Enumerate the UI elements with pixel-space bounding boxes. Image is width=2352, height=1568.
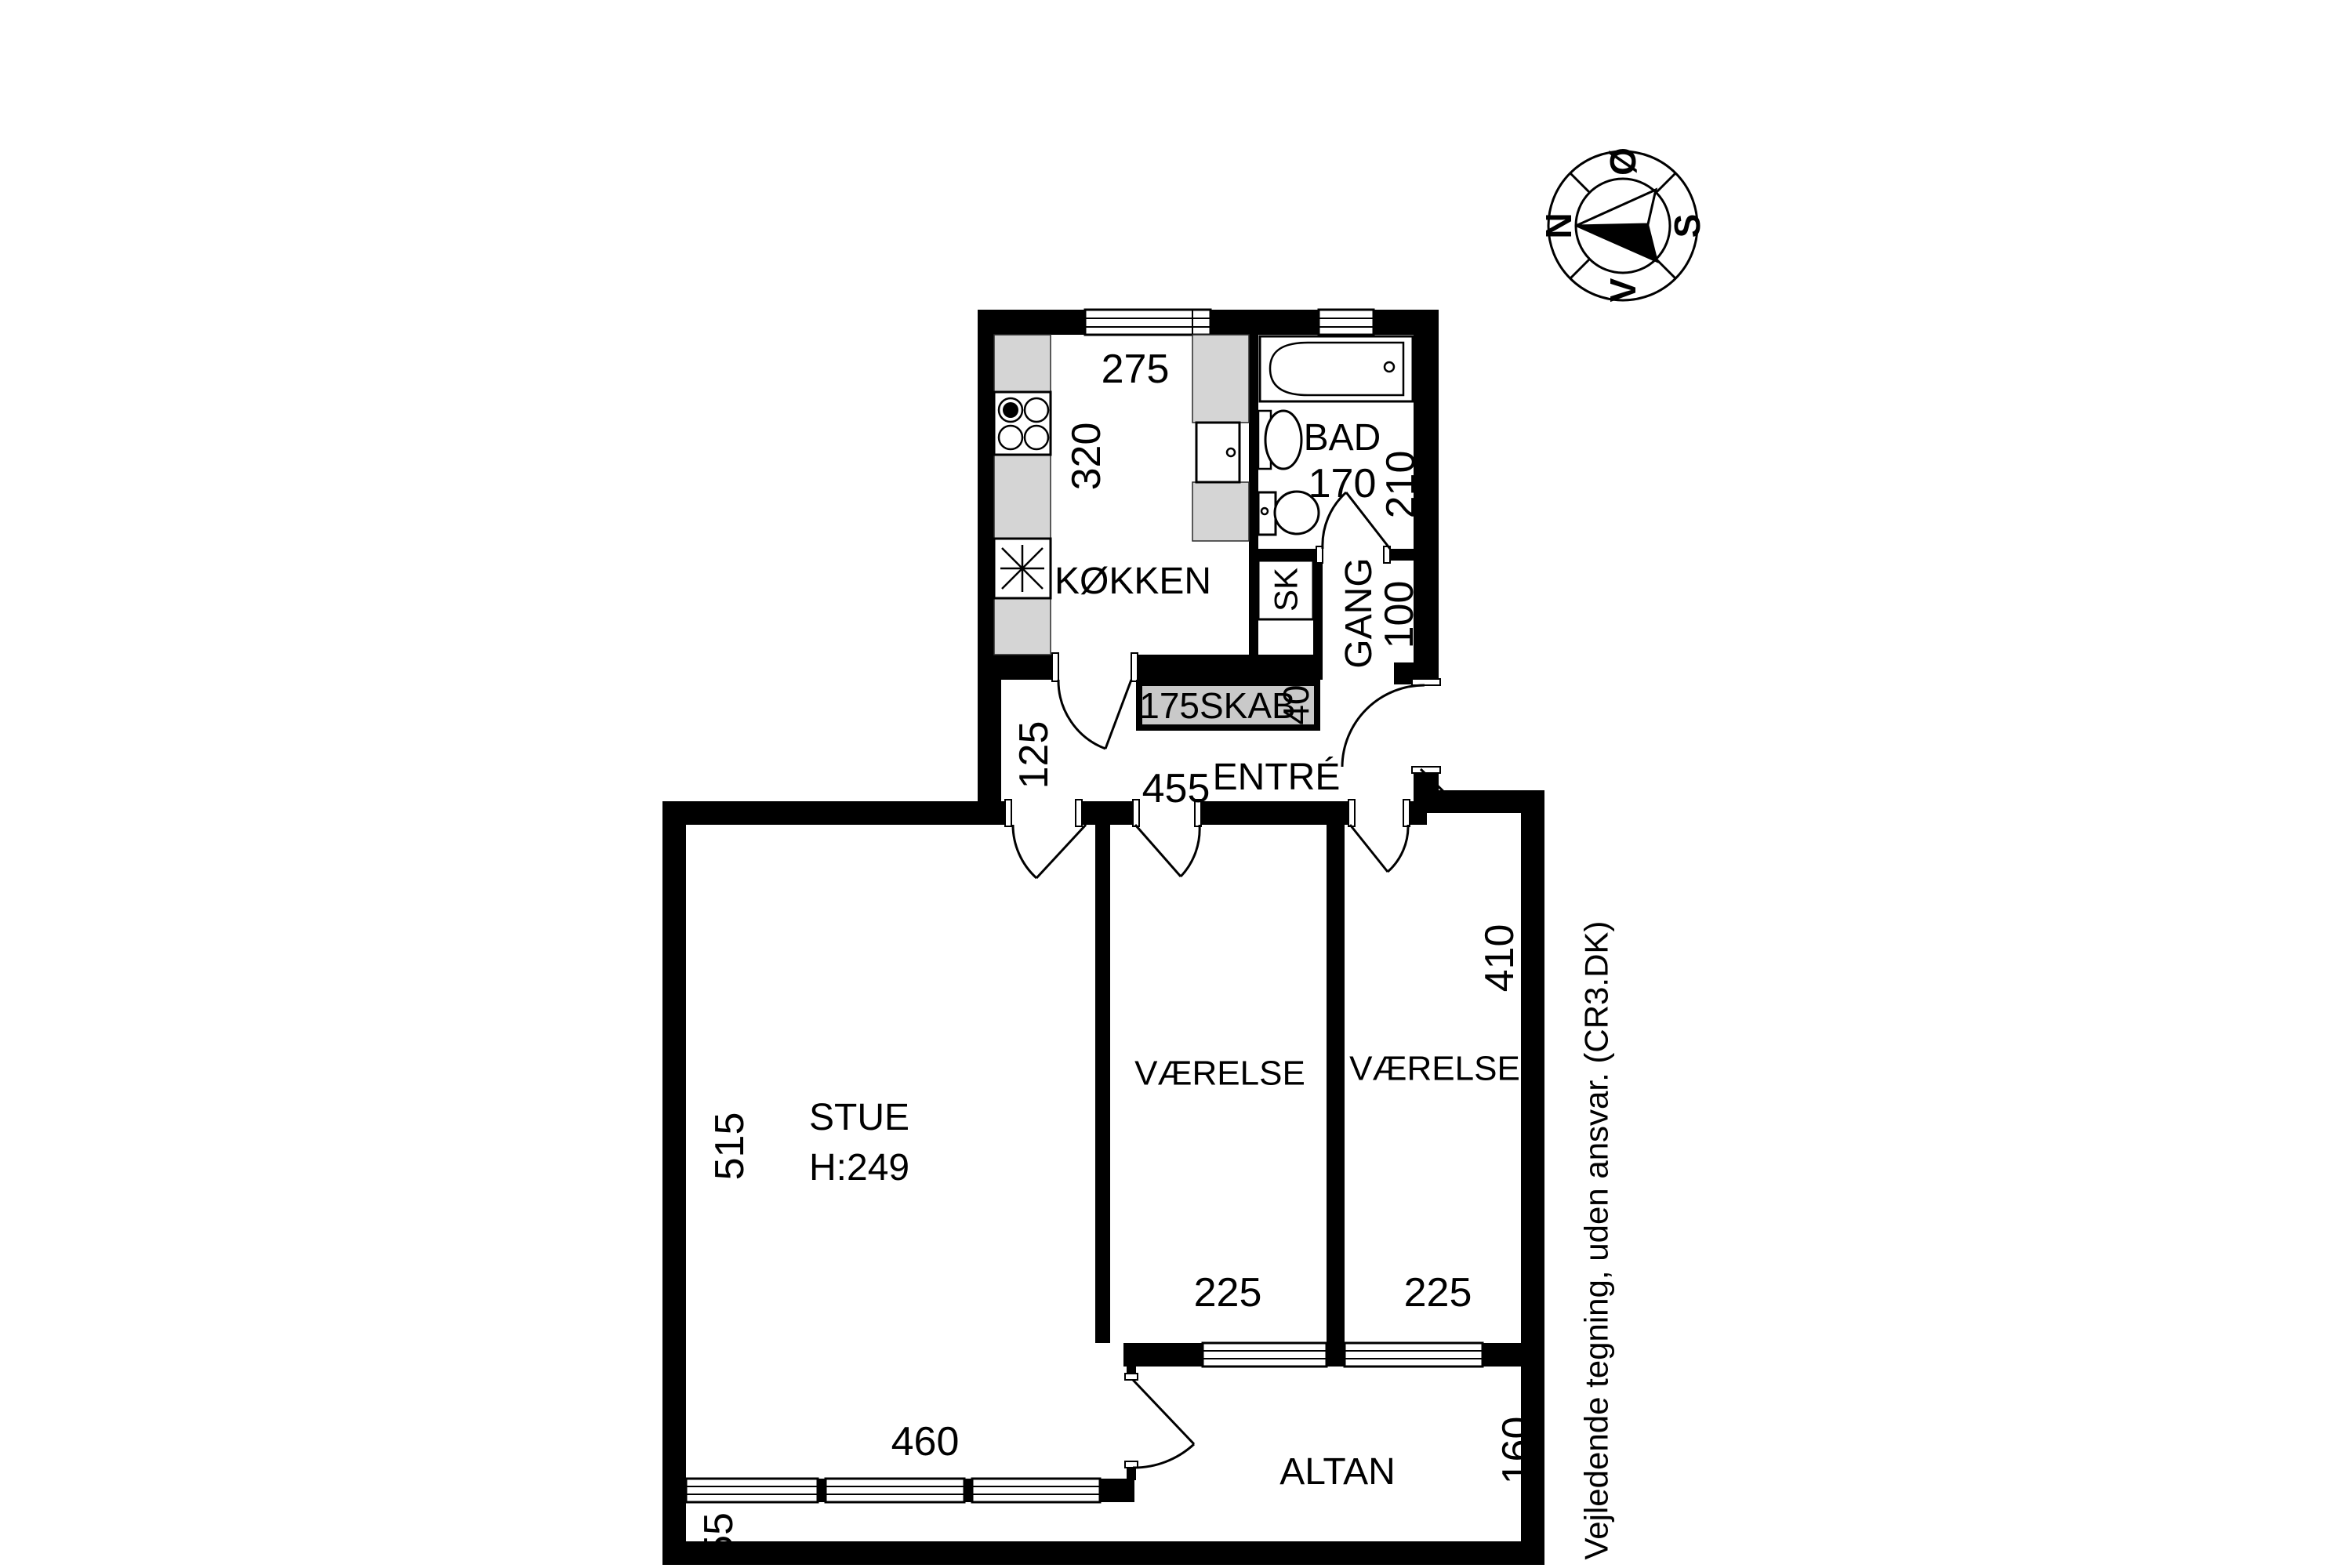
door-altan	[1133, 1380, 1194, 1468]
window-stue-1	[686, 1479, 818, 1502]
fridge-icon	[1196, 423, 1240, 482]
dim-kitchen-width: 275	[1102, 347, 1170, 392]
compass-label-n: N	[1538, 212, 1579, 238]
window-stue-3	[972, 1479, 1100, 1502]
wall-segment	[1327, 1343, 1345, 1367]
compass-rose: N Ø S V	[1538, 147, 1708, 302]
wall-segment	[1313, 549, 1323, 661]
dim-altan-strip: 55	[696, 1512, 742, 1558]
window-vaerelse-left	[1203, 1343, 1327, 1367]
room-label-vaerelse-right: VÆRELSE	[1349, 1049, 1520, 1087]
room-label-vaerelse-left: VÆRELSE	[1134, 1054, 1305, 1092]
labels: 275 320 KØKKEN BAD 170 210 SK GANG 100 1…	[696, 347, 1615, 1559]
wall-segment	[1410, 801, 1427, 825]
door-vaerelse-right	[1350, 825, 1408, 872]
wall-segment	[1249, 335, 1258, 655]
door-jamb	[1005, 800, 1011, 826]
door-jamb	[1316, 546, 1323, 563]
door-jamb	[1133, 800, 1139, 826]
skab-label: 175SKAB	[1139, 685, 1295, 726]
window-stue-2	[826, 1479, 964, 1502]
dim-gang-width: 100	[1377, 581, 1422, 649]
wall-segment	[1390, 549, 1414, 561]
wall-segment	[1210, 310, 1319, 335]
room-label-entre: ENTRÉ	[1213, 757, 1341, 798]
dim-bad-width: 170	[1308, 461, 1377, 506]
window-bad	[1319, 310, 1374, 335]
room-label-stue: STUE	[809, 1097, 909, 1138]
kitchen-counter	[994, 335, 1051, 392]
wall-segment	[1249, 549, 1323, 561]
compass-tick-sw	[1570, 259, 1590, 278]
dim-bad-depth: 210	[1378, 451, 1424, 519]
door-jamb	[1412, 679, 1440, 685]
room-label-sk: SK	[1268, 568, 1305, 612]
floor-plan: 275 320 KØKKEN BAD 170 210 SK GANG 100 1…	[0, 0, 2352, 1568]
dim-entre-left: 125	[1011, 721, 1057, 789]
window-kitchen	[1085, 310, 1210, 335]
compass-label-v: V	[1602, 278, 1643, 302]
kitchen-counter	[994, 598, 1051, 655]
room-label-altan: ALTAN	[1279, 1451, 1396, 1493]
wall-segment	[1327, 825, 1345, 1343]
door-jamb	[1131, 653, 1138, 681]
door-jamb	[1125, 1374, 1138, 1380]
compass-label-e: Ø	[1602, 147, 1643, 176]
door-kitchen	[1058, 680, 1131, 749]
wall-segment	[662, 801, 1011, 825]
dim-altan-depth: 160	[1494, 1417, 1540, 1485]
disclaimer-text: Vejledende tegning, uden ansvar. (CR3.DK…	[1578, 921, 1615, 1560]
door-jamb	[1076, 800, 1082, 826]
wall-segment	[662, 1541, 1544, 1565]
door-entrance	[1342, 685, 1452, 800]
bathtub-icon	[1260, 336, 1413, 401]
wall-segment	[1483, 1343, 1544, 1367]
compass-tick-se	[1656, 259, 1675, 278]
door-jamb	[1403, 800, 1410, 826]
room-label-koekken: KØKKEN	[1054, 561, 1211, 602]
dim-stue-depth: 515	[707, 1112, 753, 1181]
door-vaerelse-left	[1135, 825, 1200, 877]
kitchen-counter	[1192, 335, 1249, 423]
dim-entre-width: 455	[1142, 766, 1210, 811]
wall-segment	[662, 801, 686, 1565]
wall-segment	[1521, 813, 1544, 1367]
door-jamb	[1412, 767, 1440, 773]
stove-icon	[994, 392, 1051, 455]
door-jamb	[1052, 653, 1058, 681]
kitchen-counter	[1192, 482, 1249, 541]
compass-label-s: S	[1667, 214, 1708, 238]
dim-vaerelse-left-width: 225	[1194, 1270, 1262, 1316]
wall-segment	[1201, 801, 1348, 825]
bathroom-sink-icon	[1258, 411, 1301, 469]
wall-segment	[1131, 655, 1323, 680]
door-stue	[1013, 825, 1086, 878]
compass-tick-nw	[1570, 173, 1590, 193]
wall-segment	[1095, 825, 1110, 1343]
wall-segment	[994, 655, 1058, 680]
skab-depth: 40	[1276, 684, 1316, 724]
wall-segment	[1100, 1479, 1134, 1502]
wall-segment	[1127, 1468, 1136, 1480]
room-label-gang: GANG	[1338, 557, 1380, 668]
room-label-bad: BAD	[1304, 417, 1381, 459]
stue-ceiling: H:249	[809, 1147, 909, 1189]
compass-tick-ne	[1656, 173, 1675, 193]
wall-segment	[1414, 790, 1544, 813]
door-jamb	[1348, 800, 1355, 826]
dim-stue-width: 460	[891, 1419, 960, 1465]
window-vaerelse-right	[1345, 1343, 1483, 1367]
kitchen-counter	[994, 455, 1051, 539]
dim-vaerelse-right-width: 225	[1404, 1270, 1472, 1316]
wall-segment	[1082, 801, 1133, 825]
dim-kitchen-depth: 320	[1064, 423, 1109, 491]
kitchen-sink-icon	[994, 539, 1051, 598]
dim-vaerelse-right-depth: 410	[1477, 924, 1523, 993]
